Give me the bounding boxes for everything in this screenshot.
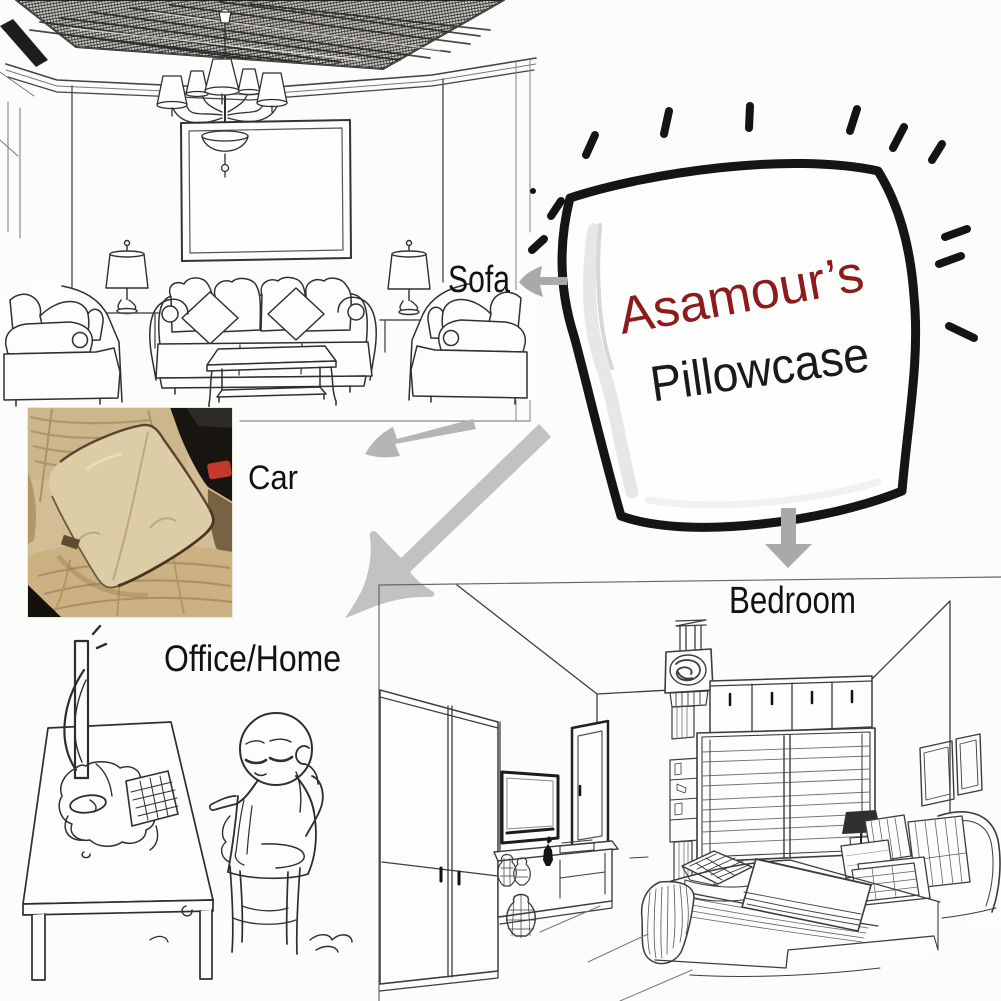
svg-text:Bedroom: Bedroom (729, 580, 856, 622)
svg-text:Office/Home: Office/Home (164, 638, 341, 679)
svg-text:Car: Car (248, 459, 298, 497)
svg-text:Sofa: Sofa (448, 259, 511, 301)
